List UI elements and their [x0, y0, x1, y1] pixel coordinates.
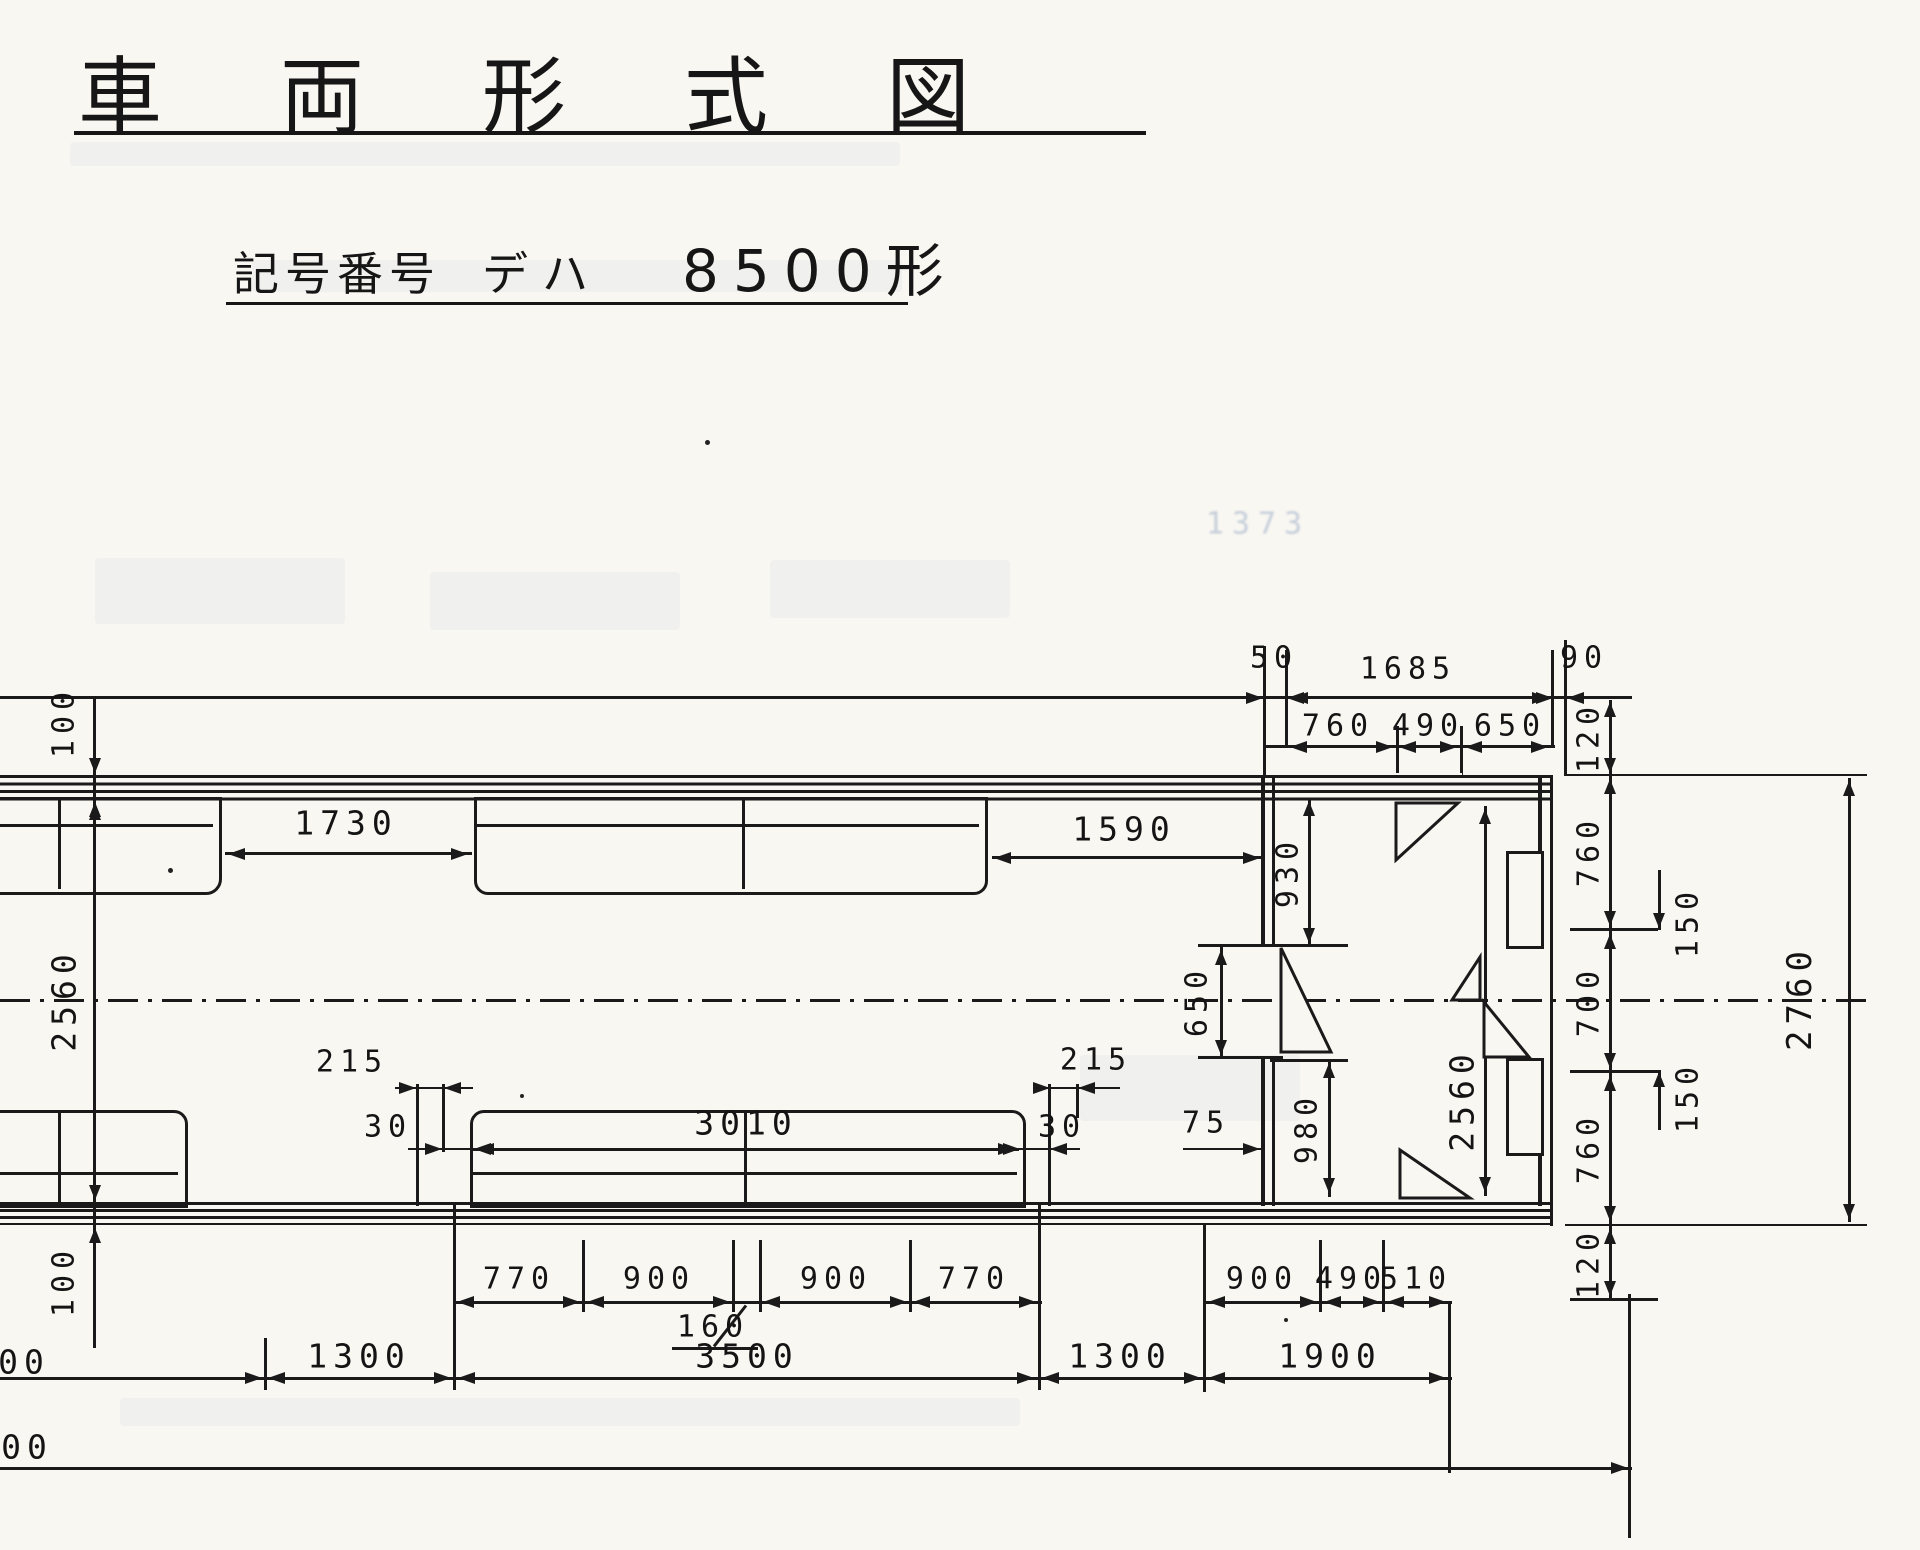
dim-bottom-1300-right: 1300	[1068, 1337, 1171, 1376]
dim-cab-2560: 2560	[1443, 1048, 1482, 1151]
dim-end-510: 510	[1380, 1262, 1452, 1297]
dim-seat-215-left: 215	[316, 1045, 388, 1080]
dim-bottom-1300-left: 1300	[307, 1337, 410, 1376]
door-swing-overlay	[0, 0, 1920, 1550]
dim-wall-100-top: 100	[47, 686, 82, 758]
dim-end-490: 490	[1315, 1262, 1387, 1297]
dim-cab-930: 930	[1271, 836, 1306, 908]
dim-seat-30-left: 30	[364, 1110, 412, 1145]
dim-top-50: 50	[1250, 641, 1298, 676]
dim-top-90: 90	[1560, 641, 1608, 676]
dim-right-150-lower: 150	[1671, 1061, 1706, 1133]
dim-spacing-770-a: 770	[483, 1262, 555, 1297]
dim-body-2560-left: 2560	[45, 948, 84, 1051]
dim-seat-gap-1590: 1590	[1072, 810, 1175, 849]
door-leaf-front-lower	[1484, 1002, 1529, 1057]
dim-top-1685: 1685	[1360, 652, 1456, 687]
door-leaf-front-upper	[1452, 957, 1480, 1000]
dim-wall-100-bottom: 100	[47, 1245, 82, 1317]
dim-right-2760: 2760	[1780, 945, 1820, 1051]
dim-top-650: 650	[1474, 709, 1546, 744]
dim-bottom-3500: 3500	[695, 1337, 798, 1376]
dim-right-700: 700	[1572, 965, 1607, 1037]
dim-right-120-top: 120	[1572, 701, 1607, 773]
door-leaf-bottom	[1400, 1150, 1470, 1198]
dim-seat-gap-1730: 1730	[294, 804, 397, 843]
dim-partial-left-upper: 00	[0, 1343, 50, 1382]
dim-seat-215-right: 215	[1060, 1043, 1132, 1078]
door-leaf-top	[1396, 803, 1458, 860]
dim-top-490: 490	[1392, 709, 1464, 744]
door-leaf-partition	[1281, 948, 1331, 1052]
dim-right-760-upper: 760	[1572, 815, 1607, 887]
dim-cab-980: 980	[1290, 1092, 1325, 1164]
scanned-drawing-sheet: 1373 車両形式図 記号番号 デハ 8500形 50 1685 90 760 …	[0, 0, 1920, 1550]
dim-end-900: 900	[1226, 1262, 1298, 1297]
dim-seat-30-right: 30	[1038, 1110, 1086, 1145]
dim-spacing-770-b: 770	[938, 1262, 1010, 1297]
dim-spacing-900-a: 900	[623, 1262, 695, 1297]
dim-right-150-upper: 150	[1671, 886, 1706, 958]
dim-seat-3010: 3010	[694, 1104, 797, 1143]
dim-seat-75: 75	[1182, 1106, 1230, 1141]
dim-partial-left-lower: 00	[1, 1428, 53, 1467]
dim-spacing-900-b: 900	[800, 1262, 872, 1297]
dim-cab-650: 650	[1180, 965, 1215, 1037]
dim-right-120-bottom: 120	[1572, 1227, 1607, 1299]
dim-top-760: 760	[1302, 709, 1374, 744]
dim-bottom-1900: 1900	[1278, 1337, 1381, 1376]
dim-right-760-lower: 760	[1572, 1112, 1607, 1184]
